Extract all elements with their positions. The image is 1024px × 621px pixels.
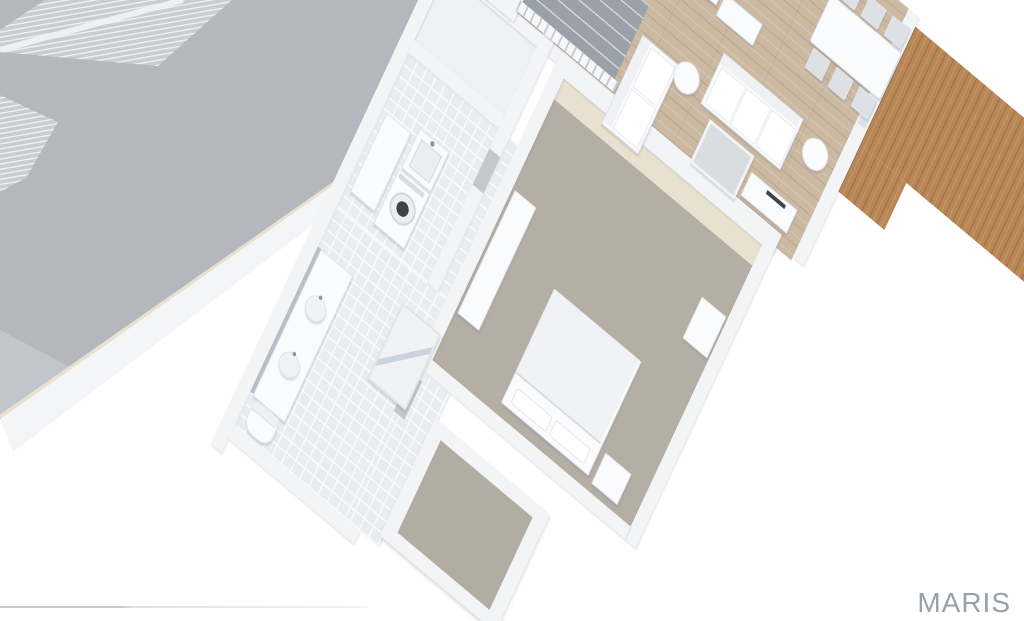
floorplan-render: MARIS	[0, 0, 1024, 621]
sink-basin	[409, 139, 442, 184]
image-border-line	[0, 606, 368, 608]
washer-door	[385, 186, 421, 232]
maris-watermark: MARIS	[917, 587, 1011, 619]
washer-door-glass	[394, 198, 411, 220]
